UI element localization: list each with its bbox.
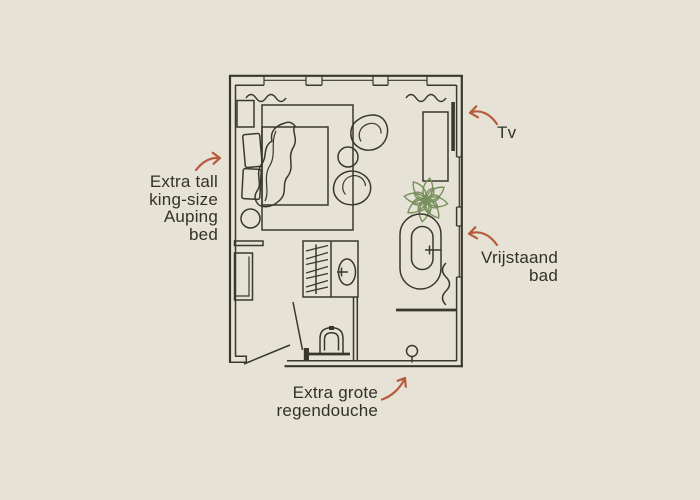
floorplan-svg bbox=[0, 0, 700, 500]
label-bed-line: bed bbox=[149, 226, 218, 244]
label-shower-line: regendouche bbox=[277, 402, 378, 420]
bath-area bbox=[396, 214, 456, 363]
arrow-shower-icon bbox=[382, 378, 406, 400]
arrow-bath-icon bbox=[469, 227, 497, 245]
label-shower-line: Extra grote bbox=[277, 384, 378, 402]
armchair-icon bbox=[351, 115, 388, 150]
toilet-flush-icon bbox=[329, 326, 334, 330]
label-bed-line: king-size bbox=[149, 191, 218, 209]
stool-icon bbox=[241, 209, 260, 228]
radiator-squiggle-icon bbox=[443, 263, 450, 305]
armchair-cushion bbox=[359, 123, 381, 141]
arrow-tv-icon bbox=[470, 106, 497, 124]
towel-radiator-hatching bbox=[306, 246, 328, 293]
side-table-icon bbox=[338, 147, 358, 167]
bathroom-core bbox=[235, 241, 359, 364]
windows bbox=[264, 76, 462, 277]
plant-icon bbox=[404, 178, 449, 223]
tv-icon bbox=[451, 102, 455, 151]
partition-wall bbox=[354, 297, 358, 361]
label-tv-line: Tv bbox=[497, 124, 516, 142]
label-bed: Extra tall king-size Auping bed bbox=[149, 173, 218, 243]
room-floorplan-illustration: Extra tall king-size Auping bed Tv Vrijs… bbox=[0, 0, 700, 500]
label-bath-line: bad bbox=[481, 267, 558, 285]
shower-drain-icon bbox=[407, 346, 418, 357]
duvet-icon bbox=[255, 122, 295, 206]
tv-cabinet-icon bbox=[423, 112, 448, 181]
toilet-bowl-inner bbox=[325, 333, 339, 351]
toilet-icon bbox=[320, 328, 343, 354]
label-bath: Vrijstaand bad bbox=[481, 249, 558, 284]
label-bed-line: Auping bbox=[149, 208, 218, 226]
wall-left-foot bbox=[229, 356, 246, 363]
pillow-icon bbox=[243, 133, 263, 167]
wardrobe-icon bbox=[235, 253, 253, 300]
curtain-icon-right bbox=[406, 95, 446, 102]
entrance-door-icon bbox=[244, 345, 290, 364]
label-shower: Extra grote regendouche bbox=[277, 384, 378, 419]
bathroom-door-icon bbox=[293, 302, 303, 350]
rug-outline bbox=[262, 105, 353, 230]
wardrobe-inner bbox=[236, 257, 249, 297]
walls bbox=[229, 75, 463, 367]
label-tv: Tv bbox=[497, 124, 516, 142]
nightstand-icon bbox=[237, 101, 254, 128]
low-wall-stub bbox=[304, 348, 309, 361]
bathtub-icon bbox=[400, 214, 441, 289]
arrow-bed-icon bbox=[196, 153, 220, 170]
label-bath-line: Vrijstaand bbox=[481, 249, 558, 267]
bedroom-furniture bbox=[237, 95, 446, 231]
wall-stub bbox=[235, 241, 264, 246]
armchair-cushion bbox=[343, 176, 366, 195]
label-bed-line: Extra tall bbox=[149, 173, 218, 191]
